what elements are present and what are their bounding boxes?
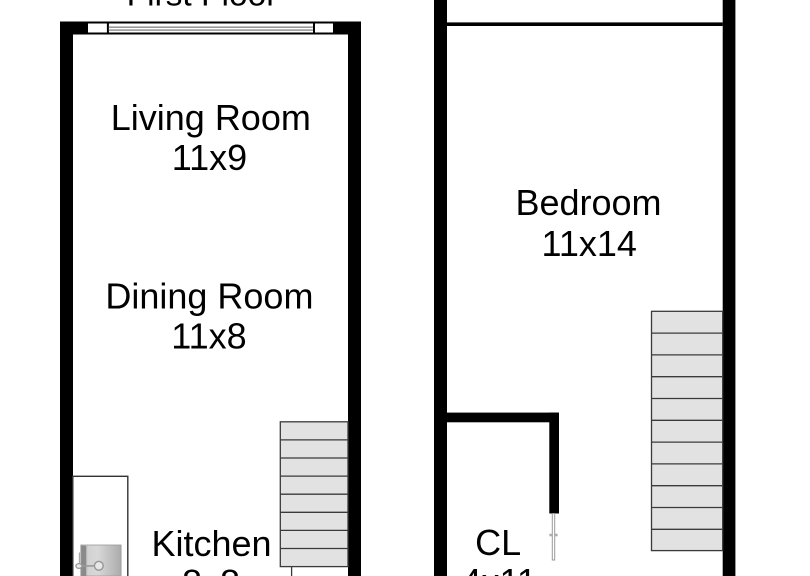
svg-text:11x14: 11x14 (541, 223, 636, 264)
svg-text:8x8: 8x8 (182, 562, 240, 576)
svg-text:First Floor: First Floor (127, 0, 278, 14)
svg-text:11x9: 11x9 (172, 137, 247, 178)
svg-text:CL: CL (475, 522, 521, 563)
svg-text:Kitchen: Kitchen (151, 523, 271, 564)
svg-text:4x11: 4x11 (461, 561, 536, 576)
svg-text:11x8: 11x8 (171, 315, 246, 356)
svg-text:Bedroom: Bedroom (515, 182, 661, 223)
svg-text:Living Room: Living Room (111, 97, 311, 138)
svg-text:Dining Room: Dining Room (105, 275, 313, 316)
